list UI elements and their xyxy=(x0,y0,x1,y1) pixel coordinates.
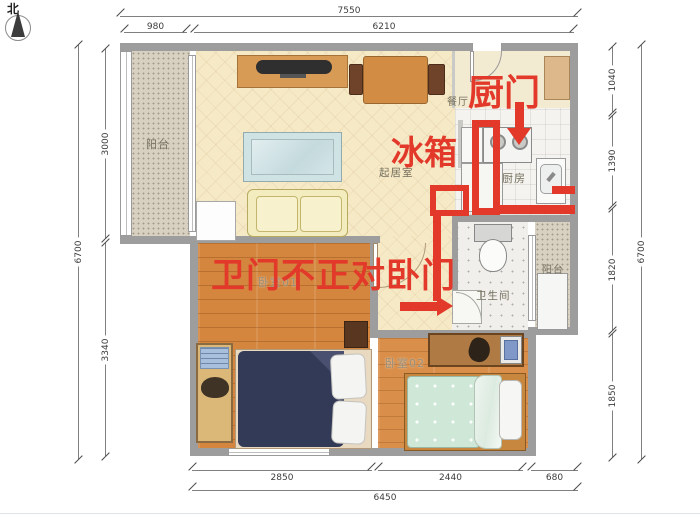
tv-stand xyxy=(280,74,306,78)
dim-right-total-value: 6700 xyxy=(637,238,647,267)
annotation-kitchen-door-arrow-shaft xyxy=(515,102,524,128)
toilet-bowl xyxy=(479,239,507,272)
annotation-counter-bar-long xyxy=(498,205,575,214)
annotation-bath-arrow-shaft xyxy=(400,302,437,311)
dim-left-lower: 3340 xyxy=(105,243,106,456)
bed2-blanket xyxy=(407,376,480,448)
dim-top-total-value: 7550 xyxy=(335,6,364,16)
dim-bottom-2: 2440 xyxy=(378,470,523,471)
dim-right-2: 1390 xyxy=(612,116,613,205)
dim-top-left-value: 980 xyxy=(144,22,167,32)
dim-bottom-total: 6450 xyxy=(192,490,578,491)
label-kitchen: 厨房 xyxy=(502,170,526,186)
dim-bottom-3: 680 xyxy=(531,470,578,471)
annotation-kitchen-door-arrow-head xyxy=(507,128,531,145)
dim-right-total: 6700 xyxy=(641,45,642,459)
dining-chair-left xyxy=(349,64,363,95)
bed1-pillow-top xyxy=(330,353,367,400)
annotation-fridge-rect xyxy=(430,185,469,216)
dim-left-upper: 3000 xyxy=(105,49,106,238)
bed2-blanket-fold xyxy=(474,375,502,449)
floorplan-page: { "compass": { "north_label": "北" }, "ro… xyxy=(0,0,700,524)
hall-cabinet xyxy=(544,56,570,100)
dim-left-upper-value: 3000 xyxy=(101,129,111,158)
dim-right-1-value: 1040 xyxy=(608,65,618,94)
dining-chair-right xyxy=(428,64,445,95)
annotation-kitchen-door-label: 厨门 xyxy=(468,76,540,112)
dim-top-total: 7550 xyxy=(120,16,578,17)
dim-right-1: 1040 xyxy=(612,47,613,112)
annotation-bath-arrow-head xyxy=(437,296,453,316)
coffee-table-glass xyxy=(251,139,334,175)
label-bathroom: 卫生间 xyxy=(476,288,511,303)
dim-bottom-3-value: 680 xyxy=(543,473,566,483)
annotation-kitchen-door-rect xyxy=(472,120,500,215)
annotation-counter-bar-short xyxy=(552,186,575,194)
window-bedroom1-bottom xyxy=(228,448,330,456)
dim-top-right-value: 6210 xyxy=(370,22,399,32)
dim-right-2-value: 1390 xyxy=(608,146,618,175)
window-balcony-left-outer xyxy=(120,51,132,236)
bedroom1-keyboard xyxy=(200,347,229,369)
annotation-fridge-label: 冰箱 xyxy=(391,136,457,169)
wall-bedroom2-right xyxy=(528,330,536,456)
window-balcony-living xyxy=(188,55,196,232)
dim-right-3: 1820 xyxy=(612,209,613,330)
washing-machine xyxy=(537,273,568,330)
label-dining: 餐厅 xyxy=(447,93,469,108)
annotation-bath-door-note: 卫门不正对卧门 xyxy=(211,259,456,293)
dim-bottom-2-value: 2440 xyxy=(436,473,465,483)
dim-left-total-value: 6700 xyxy=(74,238,84,267)
dim-left-total: 6700 xyxy=(78,45,79,459)
dim-top-right: 6210 xyxy=(194,32,574,33)
wall-bathroom-top xyxy=(452,215,578,222)
dim-bottom-total-value: 6450 xyxy=(371,493,400,503)
tv xyxy=(256,60,332,74)
dim-bottom-1-value: 2850 xyxy=(268,473,297,483)
compass: 北 xyxy=(2,0,36,48)
dim-right-4-value: 1850 xyxy=(608,381,618,410)
wall-top xyxy=(120,43,578,51)
bedroom1-hat xyxy=(201,377,229,398)
compass-needle-icon xyxy=(11,11,25,37)
bed1-pillow-bottom xyxy=(331,400,367,445)
label-balcony-left: 阳台 xyxy=(146,136,170,152)
dim-top-left: 980 xyxy=(124,32,187,33)
dim-left-lower-value: 3340 xyxy=(101,335,111,364)
wall-balcony-left-bottom xyxy=(120,236,198,244)
bed2-pillow xyxy=(499,380,522,440)
sofa-cushion-left xyxy=(256,196,298,232)
entry-door-opening xyxy=(472,43,502,51)
sofa-cushion-right xyxy=(300,196,342,232)
side-cabinet xyxy=(196,201,236,241)
dim-right-4: 1850 xyxy=(612,334,613,457)
label-bedroom2: 卧室02 xyxy=(385,355,425,371)
bedroom2-shirt xyxy=(504,340,518,360)
bottom-edge-line xyxy=(0,513,700,514)
dining-table xyxy=(363,56,428,104)
dim-bottom-1: 2850 xyxy=(192,470,372,471)
window-bathroom-balcony xyxy=(528,235,536,321)
bedroom1-nightstand xyxy=(344,321,368,348)
label-balcony-right: 阳台 xyxy=(542,261,564,276)
dim-right-3-value: 1820 xyxy=(608,255,618,284)
